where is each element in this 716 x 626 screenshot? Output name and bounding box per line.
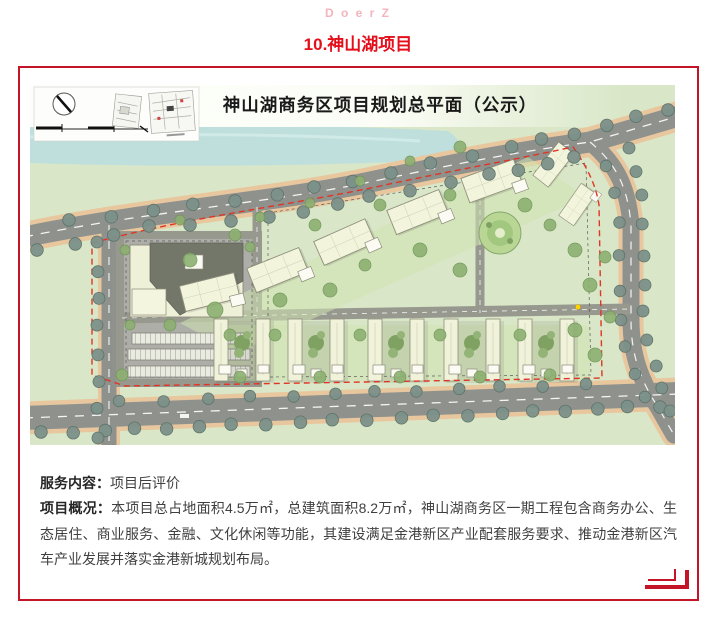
site-plan-svg: 神山湖商务区项目规划总平面（公示）	[30, 85, 675, 445]
site-plan-image: 神山湖商务区项目规划总平面（公示）	[30, 85, 675, 445]
map-title: 神山湖商务区项目规划总平面（公示）	[223, 95, 538, 115]
location-thumbnail-small	[112, 94, 141, 129]
brand-watermark: D o e r Z	[0, 6, 716, 20]
page-title: 10.神山湖项目	[0, 30, 716, 55]
corner-bracket-inner	[648, 569, 676, 581]
compass-icon	[53, 93, 75, 115]
service-line: 服务内容：项目后评价	[40, 471, 677, 497]
overview-line: 项目概况：本项目总占地面积4.5万㎡，总建筑面积8.2万㎡，神山湖商务区一期工程…	[40, 496, 677, 573]
corner-decoration	[639, 559, 689, 589]
content-frame: 神山湖商务区项目规划总平面（公示） 服务内容：项目后评价 项目概况：本项目总占地…	[18, 66, 699, 601]
service-label: 服务内容：	[40, 475, 110, 491]
overview-label: 项目概况：	[40, 500, 111, 516]
overview-value: 本项目总占地面积4.5万㎡，总建筑面积8.2万㎡，神山湖商务区一期工程包含商务办…	[40, 500, 677, 567]
map-legend	[34, 87, 199, 141]
article-page: D o e r Z 10.神山湖项目	[0, 0, 716, 626]
garden-circle	[479, 212, 521, 254]
service-value: 项目后评价	[110, 475, 180, 491]
marker-dot	[576, 305, 581, 310]
location-thumbnail-large	[149, 90, 196, 137]
